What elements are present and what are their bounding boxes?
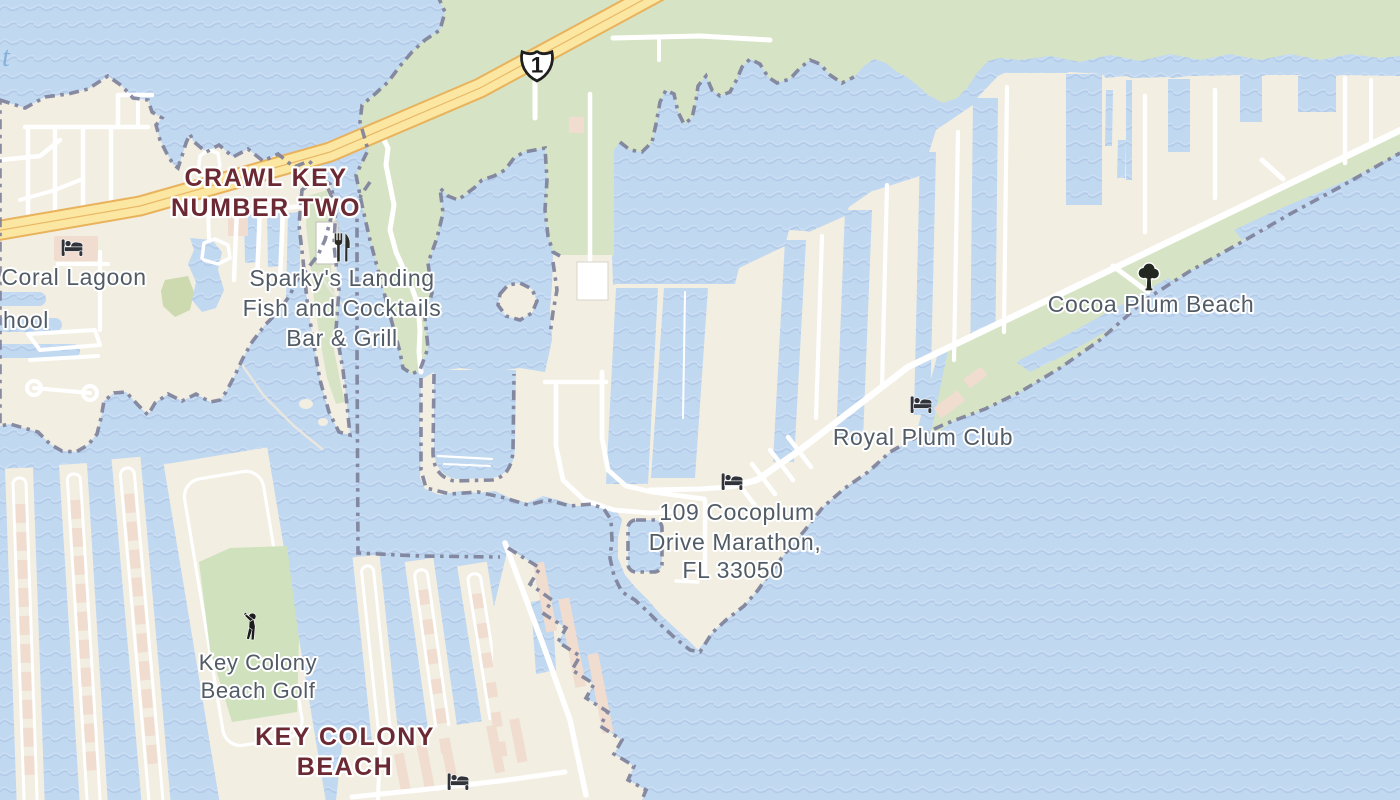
svg-text:FL 33050: FL 33050 (682, 557, 783, 583)
svg-text:Coral Lagoon: Coral Lagoon (1, 264, 146, 290)
svg-text:109 Cocoplum: 109 Cocoplum (659, 499, 815, 525)
svg-text:t: t (2, 42, 11, 73)
svg-text:Bar & Grill: Bar & Grill (286, 325, 397, 351)
svg-text:BEACH: BEACH (297, 753, 393, 781)
svg-text:Cocoa Plum Beach: Cocoa Plum Beach (1048, 291, 1254, 317)
svg-text:Drive Marathon,: Drive Marathon, (649, 529, 822, 555)
svg-text:Key Colony: Key Colony (199, 650, 318, 675)
svg-text:hool: hool (3, 307, 49, 333)
svg-text:CRAWL KEY: CRAWL KEY (184, 164, 347, 192)
svg-text:Sparky's Landing: Sparky's Landing (249, 265, 434, 291)
svg-text:Fish and Cocktails: Fish and Cocktails (243, 295, 442, 321)
svg-text:Beach Golf: Beach Golf (201, 678, 316, 703)
svg-text:1: 1 (531, 53, 544, 78)
svg-text:NUMBER TWO: NUMBER TWO (171, 194, 361, 222)
svg-text:KEY COLONY: KEY COLONY (255, 723, 435, 751)
svg-text:Royal Plum Club: Royal Plum Club (833, 424, 1013, 450)
